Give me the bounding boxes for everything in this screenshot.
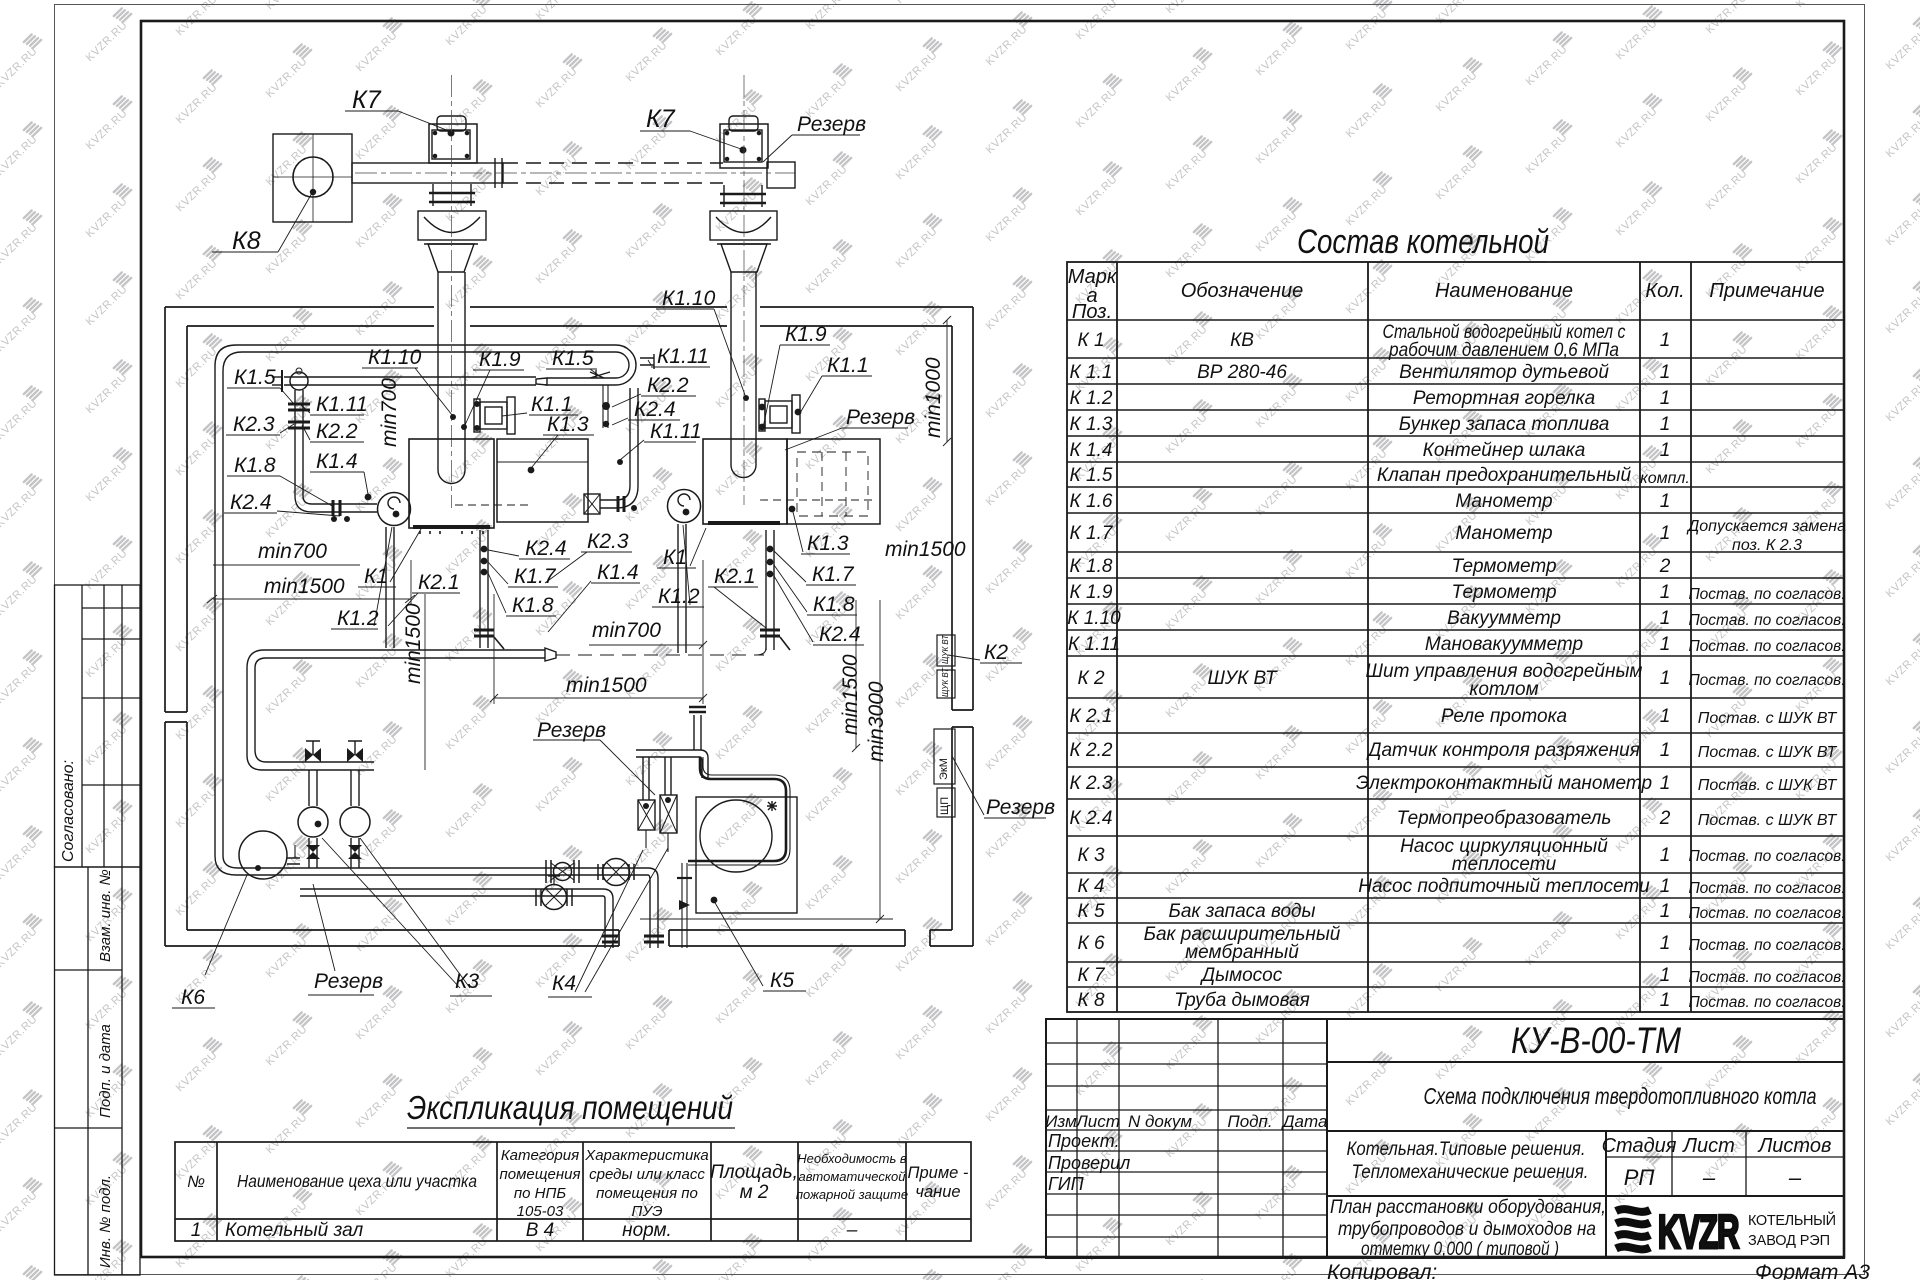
svg-text:2: 2 [1659, 808, 1671, 829]
svg-text:К1.11: К1.11 [657, 345, 709, 368]
svg-text:К1.9: К1.9 [479, 348, 521, 371]
svg-text:Постав. по согласов.: Постав. по согласов. [1688, 586, 1845, 603]
svg-text:К 2.2: К 2.2 [1070, 740, 1113, 761]
svg-text:Состав котельной: Состав котельной [1297, 223, 1549, 261]
svg-text:трубопроводов и дымоходов на: трубопроводов и дымоходов на [1338, 1219, 1596, 1240]
svg-text:Категория: Категория [501, 1147, 579, 1164]
svg-text:К2.1: К2.1 [714, 565, 756, 588]
svg-text:Манометр: Манометр [1455, 523, 1552, 544]
svg-text:min1500: min1500 [885, 538, 966, 561]
svg-text:К 1.2: К 1.2 [1070, 388, 1113, 409]
svg-text:Резерв: Резерв [314, 970, 383, 993]
svg-text:Подп.: Подп. [1227, 1112, 1272, 1131]
svg-text:К1.8: К1.8 [234, 454, 276, 477]
svg-text:К2.4: К2.4 [819, 623, 861, 646]
svg-text:поз. К 2.3: поз. К 2.3 [1732, 537, 1802, 554]
svg-text:Изм: Изм [1045, 1112, 1077, 1131]
svg-text:мембранный: мембранный [1185, 942, 1299, 963]
svg-text:Труба дымовая: Труба дымовая [1174, 990, 1310, 1011]
svg-text:Котельная.Типовые решения.: Котельная.Типовые решения. [1347, 1138, 1586, 1160]
svg-text:Бункер запаса топлива: Бункер запаса топлива [1399, 414, 1610, 435]
svg-text:ЩУК ВТ: ЩУК ВТ [941, 634, 950, 664]
svg-text:КУ-В-00-ТМ: КУ-В-00-ТМ [1511, 1020, 1681, 1061]
svg-text:1: 1 [1660, 933, 1671, 954]
svg-text:Резерв: Резерв [986, 796, 1055, 819]
svg-text:Клапан предохранительный: Клапан предохранительный [1377, 465, 1632, 486]
svg-text:К1.10: К1.10 [662, 287, 716, 310]
svg-text:Наименование цеха или участка: Наименование цеха или участка [237, 1171, 477, 1191]
svg-text:1: 1 [1660, 773, 1671, 794]
svg-text:Необходимость в: Необходимость в [797, 1151, 907, 1166]
svg-text:Реле протока: Реле протока [1441, 706, 1567, 727]
svg-text:К 4: К 4 [1077, 876, 1104, 897]
svg-text:Характеристика: Характеристика [584, 1147, 709, 1164]
svg-text:Постав. по согласов.: Постав. по согласов. [1688, 880, 1845, 897]
svg-text:К1.3: К1.3 [547, 413, 589, 436]
svg-text:среды или класс: среды или класс [589, 1166, 705, 1183]
svg-text:Постав. по согласов.: Постав. по согласов. [1688, 672, 1845, 689]
svg-text:КВ: КВ [1230, 330, 1254, 351]
svg-text:К 1.8: К 1.8 [1070, 556, 1113, 577]
svg-text:Мановакуумметр: Мановакуумметр [1425, 634, 1583, 655]
svg-text:Обозначение: Обозначение [1181, 280, 1304, 302]
svg-text:К1: К1 [663, 546, 687, 569]
svg-text:ГИП: ГИП [1048, 1174, 1085, 1194]
svg-text:N докум: N докум [1128, 1112, 1192, 1131]
svg-text:1: 1 [1660, 608, 1671, 629]
svg-text:min700: min700 [378, 378, 401, 447]
svg-text:Взам. инв. №: Взам. инв. № [97, 869, 114, 962]
svg-text:Поз.: Поз. [1072, 301, 1112, 323]
svg-text:Лист: Лист [1075, 1112, 1120, 1131]
svg-text:пожарной защите: пожарной защите [796, 1187, 908, 1202]
svg-text:min1500: min1500 [264, 575, 345, 598]
svg-text:ЩУК ВТ: ЩУК ВТ [941, 667, 950, 697]
svg-text:Дымосос: Дымосос [1200, 965, 1283, 986]
svg-text:1: 1 [1660, 362, 1671, 383]
svg-text:Постав. с ШУК ВТ: Постав. с ШУК ВТ [1698, 744, 1838, 761]
svg-text:Вакуумметр: Вакуумметр [1447, 608, 1561, 629]
svg-text:К 3: К 3 [1077, 845, 1104, 866]
svg-text:К1: К1 [364, 565, 388, 588]
svg-text:Подп. и дата: Подп. и дата [97, 1024, 114, 1118]
svg-text:К 2.4: К 2.4 [1070, 808, 1113, 829]
svg-text:Котельный зал: Котельный зал [225, 1220, 363, 1241]
svg-text:помещения: помещения [500, 1166, 581, 1183]
svg-text:К1.1: К1.1 [827, 354, 869, 377]
svg-text:Электроконтактный манометр: Электроконтактный манометр [1356, 773, 1652, 794]
svg-text:К1.10: К1.10 [368, 346, 422, 369]
svg-text:1: 1 [1660, 582, 1671, 603]
svg-text:чание: чание [915, 1183, 960, 1201]
svg-text:К 2: К 2 [1077, 668, 1104, 689]
svg-text:помещения по: помещения по [596, 1185, 698, 1202]
svg-text:К1.4: К1.4 [597, 561, 639, 584]
svg-text:К 5: К 5 [1077, 901, 1104, 922]
svg-text:К2.3: К2.3 [233, 413, 275, 436]
svg-text:котлом: котлом [1469, 679, 1538, 700]
svg-text:Постав. по согласов.: Постав. по согласов. [1688, 612, 1845, 629]
svg-text:К 1.10: К 1.10 [1067, 608, 1121, 629]
svg-text:1: 1 [1660, 440, 1671, 461]
svg-text:К 1.1: К 1.1 [1070, 362, 1113, 383]
svg-text:рабочим давлением 0,6 МПа: рабочим давлением 0,6 МПа [1388, 340, 1619, 361]
svg-text:К5: К5 [770, 969, 794, 992]
svg-text:К2.1: К2.1 [418, 571, 460, 594]
svg-text:Приме -: Приме - [908, 1164, 969, 1182]
svg-text:min1000: min1000 [922, 357, 945, 438]
svg-text:Постав. по согласов.: Постав. по согласов. [1688, 905, 1845, 922]
svg-text:К 1.6: К 1.6 [1070, 491, 1113, 512]
svg-text:ЩП: ЩП [939, 797, 951, 815]
svg-text:Постав. по согласов.: Постав. по согласов. [1688, 969, 1845, 986]
svg-text:1: 1 [1660, 388, 1671, 409]
svg-text:К1.11: К1.11 [650, 420, 702, 443]
svg-text:Копировал:: Копировал: [1327, 1261, 1437, 1280]
svg-text:–: – [1788, 1165, 1802, 1190]
svg-text:–: – [1702, 1165, 1716, 1190]
svg-text:KVZR: KVZR [1658, 1207, 1739, 1259]
svg-text:К 2.1: К 2.1 [1070, 706, 1113, 727]
svg-text:К1.2: К1.2 [337, 607, 379, 630]
svg-text:К2.4: К2.4 [525, 537, 567, 560]
svg-text:Манометр: Манометр [1455, 491, 1552, 512]
svg-text:min700: min700 [592, 619, 661, 642]
svg-text:Датчик контроля разряжения: Датчик контроля разряжения [1366, 740, 1640, 761]
svg-text:ЭкМ: ЭкМ [938, 758, 950, 780]
svg-text:ЗАВОД РЭП: ЗАВОД РЭП [1748, 1233, 1830, 1249]
svg-text:К 8: К 8 [1077, 990, 1104, 1011]
svg-text:min1500: min1500 [566, 674, 647, 697]
svg-text:м 2: м 2 [740, 1182, 769, 1203]
svg-text:К2: К2 [984, 641, 1008, 664]
svg-text:–: – [846, 1220, 858, 1241]
svg-text:1: 1 [1660, 634, 1671, 655]
svg-text:Ретортная горелка: Ретортная горелка [1413, 388, 1595, 409]
svg-text:Резерв: Резерв [537, 719, 606, 742]
svg-text:Постав. по согласов.: Постав. по согласов. [1688, 638, 1845, 655]
svg-text:КОТЕЛЬНЫЙ: КОТЕЛЬНЫЙ [1748, 1211, 1836, 1229]
svg-text:К1.9: К1.9 [785, 323, 827, 346]
svg-text:min700: min700 [258, 540, 327, 563]
svg-text:Экспликация помещений: Экспликация помещений [407, 1089, 733, 1126]
svg-text:ВР 280-46: ВР 280-46 [1197, 362, 1287, 383]
svg-text:Постав. по согласов.: Постав. по согласов. [1688, 848, 1845, 865]
svg-text:1: 1 [1660, 706, 1671, 727]
svg-text:1: 1 [1660, 901, 1671, 922]
svg-text:К1.8: К1.8 [813, 593, 855, 616]
svg-text:Площадь,: Площадь, [710, 1162, 798, 1183]
svg-text:по НПБ: по НПБ [514, 1185, 566, 1202]
svg-text:Вентилятор дутьевой: Вентилятор дутьевой [1399, 362, 1609, 383]
svg-text:К1.2: К1.2 [658, 585, 700, 608]
svg-text:1: 1 [1660, 845, 1671, 866]
svg-text:Схема подключения твердотоплив: Схема подключения твердотопливного котла [1424, 1083, 1817, 1109]
svg-text:Лист: Лист [1681, 1135, 1735, 1157]
svg-text:Листов: Листов [1757, 1135, 1832, 1157]
svg-text:Инв. № подл.: Инв. № подл. [97, 1175, 114, 1268]
svg-text:К 1.9: К 1.9 [1070, 582, 1113, 603]
svg-text:2: 2 [1659, 556, 1671, 577]
svg-text:К 1.11: К 1.11 [1068, 634, 1120, 655]
svg-text:План расстановки оборудования,: План расстановки оборудования, [1330, 1197, 1606, 1218]
svg-text:Постав. по согласов.: Постав. по согласов. [1688, 994, 1845, 1011]
svg-text:К8: К8 [232, 227, 261, 255]
svg-text:теплосети: теплосети [1452, 854, 1557, 875]
svg-text:Резерв: Резерв [797, 113, 866, 136]
svg-text:Дата: Дата [1281, 1112, 1328, 1131]
svg-text:Наименование: Наименование [1435, 280, 1573, 302]
svg-text:Кол.: Кол. [1645, 280, 1684, 302]
svg-text:Проект.: Проект. [1048, 1131, 1120, 1151]
svg-text:1: 1 [1660, 414, 1671, 435]
svg-text:В 4: В 4 [526, 1220, 555, 1241]
svg-text:автоматической: автоматической [799, 1169, 906, 1184]
svg-text:1: 1 [1660, 330, 1671, 351]
svg-text:1: 1 [1660, 523, 1671, 544]
svg-text:Допускается замена: Допускается замена [1686, 518, 1846, 535]
svg-text:min1500: min1500 [839, 654, 862, 735]
svg-text:Термопреобразователь: Термопреобразователь [1397, 808, 1612, 829]
svg-text:К2.2: К2.2 [647, 374, 689, 397]
svg-text:К1.7: К1.7 [812, 563, 855, 586]
svg-text:ШУК ВТ: ШУК ВТ [1207, 668, 1278, 689]
svg-text:1: 1 [1660, 740, 1671, 761]
svg-text:1: 1 [1660, 990, 1671, 1011]
svg-text:К2.4: К2.4 [230, 491, 272, 514]
svg-text:К 2.3: К 2.3 [1070, 773, 1113, 794]
svg-text:норм.: норм. [622, 1220, 672, 1241]
svg-text:К1.4: К1.4 [316, 450, 358, 473]
svg-text:Стадия: Стадия [1602, 1135, 1677, 1157]
svg-text:105-03: 105-03 [517, 1203, 564, 1220]
svg-text:1: 1 [1660, 668, 1671, 689]
svg-text:К4: К4 [552, 972, 576, 995]
svg-text:min3000: min3000 [865, 681, 888, 762]
svg-text:К 1: К 1 [1077, 330, 1104, 351]
svg-text:Проверил: Проверил [1048, 1153, 1130, 1173]
svg-text:Тепломеханические решения.: Тепломеханические решения. [1352, 1161, 1589, 1183]
svg-text:К2.3: К2.3 [587, 530, 629, 553]
svg-text:К6: К6 [181, 986, 205, 1009]
svg-text:1: 1 [1660, 491, 1671, 512]
svg-text:К2.2: К2.2 [316, 420, 358, 443]
svg-text:К 6: К 6 [1077, 933, 1104, 954]
svg-text:РП: РП [1624, 1165, 1655, 1190]
svg-text:К 1.5: К 1.5 [1070, 465, 1113, 486]
svg-text:К1.3: К1.3 [807, 532, 849, 555]
svg-text:К1.5: К1.5 [552, 347, 594, 370]
svg-text:Постав. с ШУК ВТ: Постав. с ШУК ВТ [1698, 812, 1838, 829]
svg-text:К7: К7 [646, 105, 676, 133]
svg-text:Бак запаса воды: Бак запаса воды [1168, 901, 1315, 922]
svg-text:К1.8: К1.8 [512, 594, 554, 617]
svg-text:1: 1 [191, 1220, 202, 1241]
svg-text:min1500: min1500 [402, 603, 425, 684]
svg-text:1: 1 [1660, 965, 1671, 986]
svg-text:№: № [187, 1173, 205, 1191]
svg-text:К 1.7: К 1.7 [1070, 523, 1114, 544]
svg-text:К1.5: К1.5 [234, 366, 276, 389]
svg-text:Резерв: Резерв [846, 406, 915, 429]
svg-text:К 1.3: К 1.3 [1070, 414, 1113, 435]
svg-text:Термометр: Термометр [1451, 582, 1556, 603]
svg-text:Постав. по согласов.: Постав. по согласов. [1688, 937, 1845, 954]
svg-text:Контейнер шлака: Контейнер шлака [1423, 440, 1586, 461]
svg-text:К1.7: К1.7 [514, 565, 557, 588]
svg-text:1: 1 [1660, 876, 1671, 897]
svg-text:Термометр: Термометр [1451, 556, 1556, 577]
svg-text:К1.11: К1.11 [316, 393, 368, 416]
svg-text:Постав. с ШУК ВТ: Постав. с ШУК ВТ [1698, 777, 1838, 794]
svg-text:ПУЭ: ПУЭ [631, 1203, 662, 1220]
svg-text:Примечание: Примечание [1709, 280, 1824, 302]
svg-text:К 1.4: К 1.4 [1070, 440, 1113, 461]
svg-text:К2.4: К2.4 [634, 398, 676, 421]
svg-text:Формат А3: Формат А3 [1755, 1261, 1870, 1280]
svg-text:компл.: компл. [1640, 470, 1690, 487]
svg-text:К3: К3 [455, 970, 479, 993]
svg-text:Постав. с ШУК ВТ: Постав. с ШУК ВТ [1698, 710, 1838, 727]
svg-text:отметку 0,000 ( типовой ): отметку 0,000 ( типовой ) [1361, 1239, 1559, 1260]
svg-text:К7: К7 [352, 86, 382, 114]
svg-text:Насос подпиточный теплосети: Насос подпиточный теплосети [1358, 876, 1650, 897]
svg-text:Согласовано:: Согласовано: [60, 760, 77, 862]
svg-text:К 7: К 7 [1077, 965, 1105, 986]
